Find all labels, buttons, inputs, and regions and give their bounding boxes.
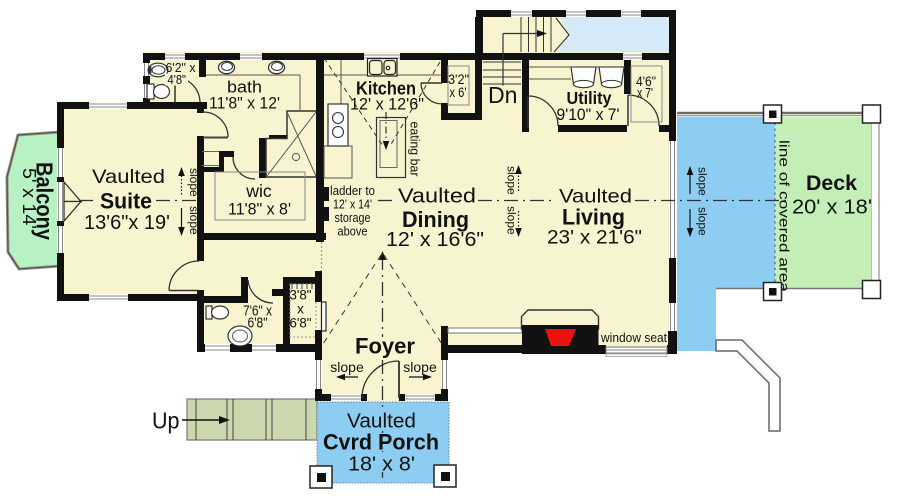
svg-text:ladder to: ladder to <box>330 184 375 198</box>
svg-text:Deck: Deck <box>806 171 857 195</box>
svg-text:11'8" x 8': 11'8" x 8' <box>228 201 291 219</box>
svg-text:x: x <box>297 302 304 317</box>
svg-text:12' x 16'6": 12' x 16'6" <box>386 228 484 251</box>
svg-text:slope: slope <box>696 167 710 196</box>
svg-text:5' x 14': 5' x 14' <box>19 168 39 229</box>
svg-text:20' x 18': 20' x 18' <box>792 197 872 219</box>
svg-text:Up: Up <box>152 408 180 434</box>
svg-text:slope: slope <box>187 206 201 235</box>
svg-text:Dn: Dn <box>488 82 518 108</box>
svg-text:12' x 14': 12' x 14' <box>333 198 372 212</box>
svg-text:6'8": 6'8" <box>248 316 268 332</box>
svg-text:9'10" x 7': 9'10" x 7' <box>557 106 620 124</box>
svg-text:13'6"x 19': 13'6"x 19' <box>84 212 170 234</box>
svg-text:eating bar: eating bar <box>408 122 423 178</box>
svg-text:4'8": 4'8" <box>168 72 187 87</box>
svg-text:slope: slope <box>505 166 519 195</box>
svg-text:x 7': x 7' <box>637 86 653 101</box>
svg-text:Cvrd Porch: Cvrd Porch <box>323 430 439 455</box>
svg-text:line of covered area: line of covered area <box>777 140 792 293</box>
svg-text:12' x 12'6": 12' x 12'6" <box>350 96 424 114</box>
svg-text:Vaulted: Vaulted <box>398 185 476 208</box>
svg-text:6'8": 6'8" <box>290 316 312 331</box>
svg-text:slope: slope <box>330 359 364 375</box>
svg-text:slope: slope <box>505 206 519 235</box>
svg-text:Suite: Suite <box>100 189 152 214</box>
svg-text:11'8" x 12': 11'8" x 12' <box>209 95 280 113</box>
svg-text:x 6': x 6' <box>450 85 467 100</box>
svg-text:Vaulted: Vaulted <box>92 166 165 188</box>
svg-text:storage: storage <box>335 211 371 225</box>
svg-text:slope: slope <box>187 168 201 197</box>
svg-text:23' x 21'6": 23' x 21'6" <box>547 227 642 249</box>
svg-text:Foyer: Foyer <box>355 334 415 359</box>
svg-text:wic: wic <box>245 181 272 201</box>
svg-text:Utility: Utility <box>567 88 612 108</box>
svg-text:slope: slope <box>696 207 710 236</box>
svg-text:window seat: window seat <box>600 330 667 345</box>
svg-text:3'8": 3'8" <box>290 288 312 303</box>
svg-text:above: above <box>338 225 368 239</box>
svg-text:slope: slope <box>403 359 437 375</box>
svg-text:18' x 8': 18' x 8' <box>348 454 415 476</box>
